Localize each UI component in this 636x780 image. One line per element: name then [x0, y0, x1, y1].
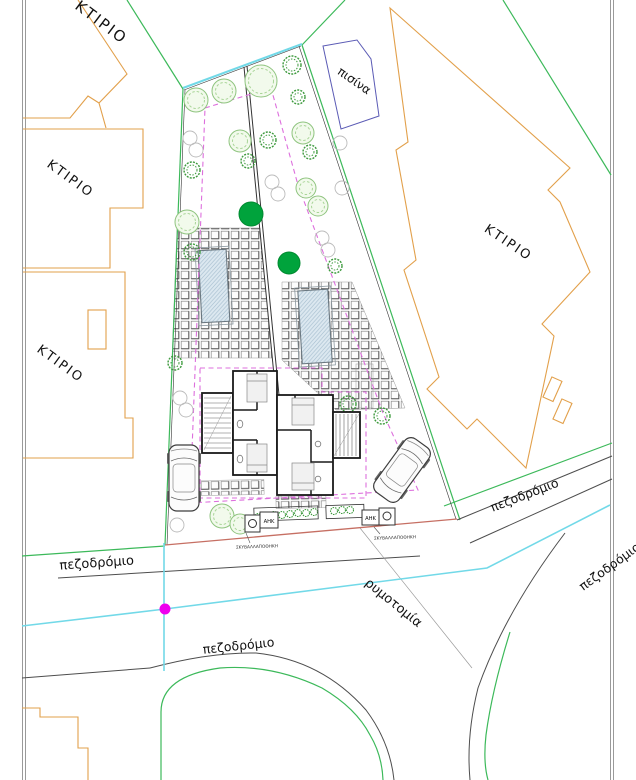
shrub-icon	[291, 90, 305, 104]
road-edge-n	[302, 0, 345, 45]
planter-plant-icon	[311, 509, 318, 516]
bed	[247, 444, 267, 472]
planter-plant-icon	[331, 508, 338, 515]
bin-store-left	[245, 515, 260, 532]
tree-outline-icon	[321, 243, 335, 257]
sidewalk-edge-sw	[22, 668, 150, 678]
label-pezodromio-east: πεζοδρόμιο	[576, 539, 636, 593]
tree-solid-icon	[278, 252, 300, 274]
tree-light-icon	[229, 130, 251, 152]
planter-plant-icon	[279, 512, 286, 519]
road-edge-nw	[127, 0, 183, 89]
street-widening-line	[165, 519, 457, 545]
label-rymotomia: ρυμοτομία	[362, 576, 425, 631]
tree-outline-icon	[271, 187, 285, 201]
tree-light-icon	[245, 65, 277, 97]
planter-plant-icon	[295, 510, 302, 517]
terrace-strip-3	[356, 364, 373, 408]
tree-light-icon	[292, 122, 314, 144]
label-garbage-left: ΣΚΥΒΑΛΛΑΠΟΘΗΚΗ	[236, 543, 278, 550]
car-left	[167, 445, 201, 511]
planter-box-right	[326, 504, 364, 518]
tree-outline-icon	[170, 518, 184, 532]
label-pezodromio-west: πεζοδρόμιο	[59, 553, 135, 573]
shrub-icon	[184, 162, 200, 178]
label-ahk-left: ΑΗΚ	[264, 519, 275, 525]
tree-light-icon	[184, 88, 208, 112]
road-edge-sw	[22, 546, 165, 556]
label-ktirio-top: ΚΤΙΡΙΟ	[72, 0, 131, 48]
shrub-icon	[260, 132, 276, 148]
road-curve-right-green	[485, 632, 510, 780]
neighbor-building-left-annex	[88, 310, 106, 349]
label-pisina: πισίνα	[335, 64, 374, 97]
tree-light-icon	[212, 79, 236, 103]
planter-plant-icon	[287, 511, 294, 518]
bed	[292, 463, 314, 490]
garbage-leader-right	[374, 527, 380, 534]
neighbor-building-left-upper	[23, 129, 143, 268]
tree-light-icon	[175, 210, 199, 234]
tree-solid-icon	[239, 202, 263, 226]
neighbor-building-bottom-left	[22, 708, 88, 780]
shrub-icon	[328, 259, 342, 273]
plot-top-water-line	[183, 44, 302, 88]
label-ktirio-left-lower: ΚΤΙΡΙΟ	[34, 342, 87, 386]
bed	[292, 398, 314, 425]
label-ktirio-left-upper: ΚΤΙΡΙΟ	[44, 157, 97, 201]
site-plan-page: ΚΤΙΡΙΟ ΚΤΙΡΙΟ ΚΤΙΡΙΟ ΚΤΙΡΙΟ πισίνα πεζοδ…	[0, 0, 636, 780]
neighbor-building-left-lower	[23, 272, 133, 458]
road-edge-ne-diagonal	[503, 0, 611, 175]
road-curve-south-green	[161, 667, 383, 780]
road-curve-right-black	[469, 533, 565, 780]
car-right	[369, 433, 435, 506]
shrub-icon	[303, 145, 317, 159]
bin-store-right	[379, 508, 395, 525]
neighbor-buildings	[22, 0, 590, 780]
planter-plant-icon	[303, 510, 310, 517]
label-ktirio-right: ΚΤΙΡΙΟ	[481, 222, 534, 265]
bed	[247, 374, 267, 402]
tree-light-icon	[308, 196, 328, 216]
survey-point-dot	[160, 604, 171, 615]
tree-light-icon	[296, 178, 316, 198]
label-pezodromio-northeast: πεζοδρόμιο	[488, 475, 560, 515]
terrace-strip-1	[200, 479, 264, 495]
label-ahk-right: ΑΗΚ	[365, 516, 376, 522]
tree-outline-icon	[189, 143, 203, 157]
tree-outline-icon	[179, 403, 193, 417]
label-garbage-right: ΣΚΥΒΑΛΛΑΠΟΘΗΚΗ	[374, 534, 416, 541]
neighbor-building-right-balcony-1	[543, 377, 562, 402]
planter-plant-icon	[347, 507, 354, 514]
site-plan-svg: ΚΤΙΡΙΟ ΚΤΙΡΙΟ ΚΤΙΡΙΟ ΚΤΙΡΙΟ πισίνα πεζοδ…	[0, 0, 636, 780]
planter-plant-icon	[339, 507, 346, 514]
tree-outline-icon	[335, 181, 349, 195]
shrub-icon	[283, 56, 301, 74]
neighbor-building-right-balcony-2	[553, 399, 572, 424]
